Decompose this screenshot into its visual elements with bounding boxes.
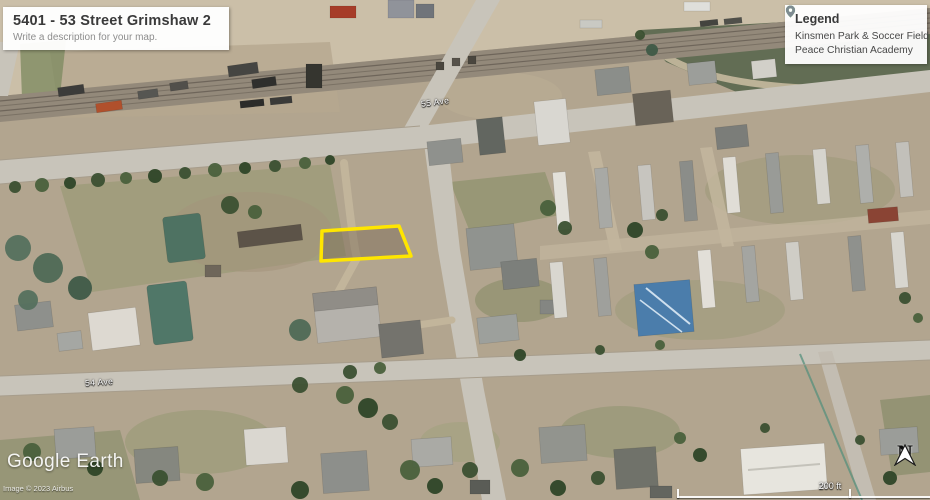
legend-item-peace-academy[interactable]: Peace Christian Academy xyxy=(795,45,917,56)
north-arrow-icon xyxy=(889,444,921,466)
map-title-card[interactable]: 5401 - 53 Street Grimshaw 2 Write a desc… xyxy=(3,7,229,50)
scale-bar-line xyxy=(677,496,930,498)
legend-item-label: Peace Christian Academy xyxy=(795,45,913,56)
parcel-outline[interactable] xyxy=(321,226,411,261)
legend-item-kinsmen-park[interactable]: Kinsmen Park & Soccer Field xyxy=(795,31,917,42)
map-title: 5401 - 53 Street Grimshaw 2 xyxy=(13,13,219,29)
scale-label: 200 ft xyxy=(800,481,860,491)
legend-item-label: Kinsmen Park & Soccer Field xyxy=(795,31,929,42)
street-label-54-ave: 54 Ave xyxy=(85,376,114,388)
legend-card: Legend Kinsmen Park & Soccer Field Peace… xyxy=(785,5,927,64)
map-description-prompt[interactable]: Write a description for your map. xyxy=(13,32,219,43)
google-earth-logo: Google Earth xyxy=(7,451,124,473)
satellite-map-canvas[interactable] xyxy=(0,0,930,500)
map-pin-icon xyxy=(785,5,796,18)
imagery-copyright: Image © 2023 Airbus xyxy=(3,484,73,493)
google-earth-viewport: 5401 - 53 Street Grimshaw 2 Write a desc… xyxy=(0,0,930,500)
legend-title: Legend xyxy=(795,12,917,26)
north-compass[interactable]: N xyxy=(889,444,921,461)
scale-bar-tick xyxy=(677,489,679,498)
